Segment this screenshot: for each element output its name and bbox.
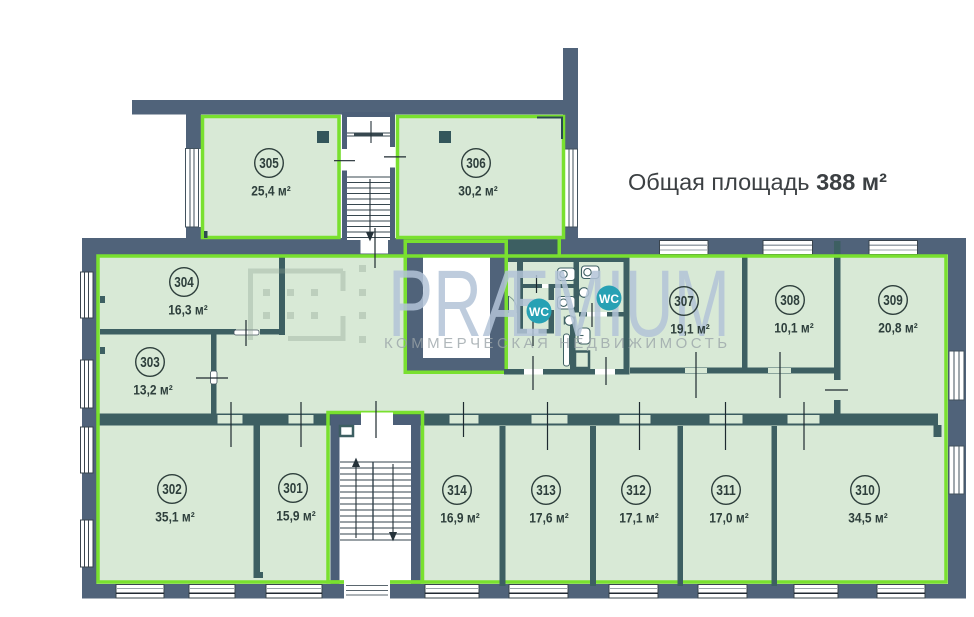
svg-text:313: 313 (536, 482, 556, 499)
svg-text:308: 308 (780, 292, 800, 309)
svg-text:Общая площадь 388 м²: Общая площадь 388 м² (628, 169, 887, 195)
svg-text:307: 307 (674, 293, 694, 310)
svg-text:13,2 м²: 13,2 м² (133, 383, 173, 398)
svg-text:10,1 м²: 10,1 м² (774, 321, 814, 336)
svg-text:302: 302 (162, 481, 182, 498)
svg-text:17,6 м²: 17,6 м² (529, 511, 569, 526)
svg-text:КОММЕРЧЕСКАЯ НЕДВИЖИМОСТЬ: КОММЕРЧЕСКАЯ НЕДВИЖИМОСТЬ (384, 335, 730, 352)
svg-text:35,1 м²: 35,1 м² (155, 510, 195, 525)
svg-text:311: 311 (716, 482, 736, 499)
svg-text:301: 301 (283, 480, 303, 497)
svg-text:25,4 м²: 25,4 м² (251, 184, 291, 199)
svg-text:16,9 м²: 16,9 м² (440, 511, 480, 526)
svg-text:16,3 м²: 16,3 м² (168, 303, 208, 318)
svg-text:17,0 м²: 17,0 м² (709, 511, 749, 526)
svg-text:30,2 м²: 30,2 м² (458, 184, 498, 199)
svg-text:310: 310 (855, 482, 875, 499)
svg-text:303: 303 (140, 354, 160, 371)
svg-text:17,1 м²: 17,1 м² (619, 511, 659, 526)
svg-text:WC: WC (529, 305, 549, 319)
svg-text:WC: WC (599, 292, 619, 306)
svg-text:20,8 м²: 20,8 м² (878, 321, 918, 336)
svg-text:34,5 м²: 34,5 м² (848, 511, 888, 526)
svg-text:312: 312 (626, 482, 646, 499)
svg-text:306: 306 (466, 155, 486, 172)
svg-text:305: 305 (259, 155, 279, 172)
svg-text:15,9 м²: 15,9 м² (276, 509, 316, 524)
svg-text:19,1 м²: 19,1 м² (670, 322, 710, 337)
svg-text:314: 314 (447, 482, 467, 499)
svg-text:304: 304 (174, 274, 194, 291)
svg-text:309: 309 (883, 292, 903, 309)
